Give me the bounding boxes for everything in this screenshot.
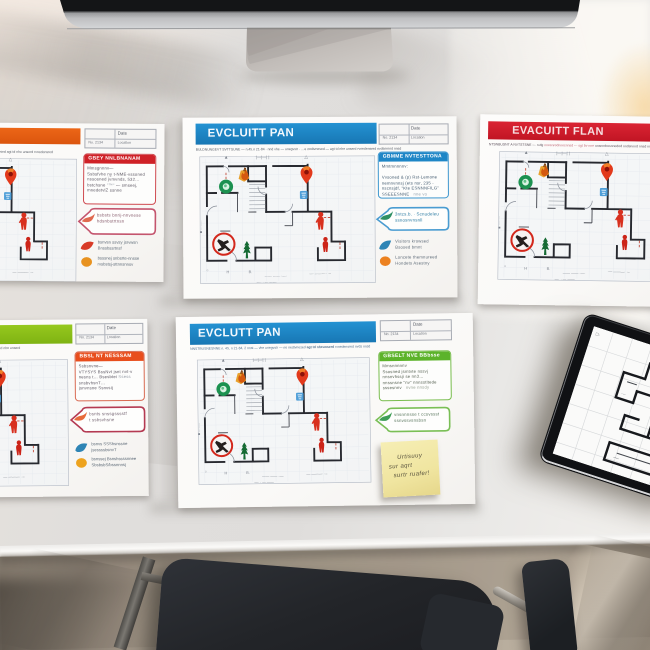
svg-text:■ ········: ■ ········ [199, 220, 203, 233]
svg-text:○: ○ [504, 264, 506, 268]
svg-text:△: △ [304, 154, 308, 159]
svg-text:·— ———· ·–: ·— ———· ·– [309, 272, 331, 276]
svg-text:—— —— ·—·: —— —— ·—· [265, 274, 287, 278]
svg-text:B.: B. [249, 270, 253, 274]
svg-text:—· · — ——: —· · — —— [257, 280, 277, 284]
svg-text:|—|—| |: |—|—| | [556, 150, 570, 155]
svg-text:—· · — ——: —· · — —— [254, 481, 274, 485]
svg-text:H: H [226, 270, 229, 274]
svg-text:□·: □· [595, 331, 601, 337]
svg-text:▲: ▲ [524, 150, 529, 155]
svg-text:■ ········: ■ ········ [197, 423, 201, 436]
svg-text:··-: ··- [621, 391, 627, 397]
svg-text:—— —— ·—·: —— —— ·—· [262, 474, 284, 478]
svg-text:—· · — ——: —· · — —— [555, 277, 575, 281]
svg-text:△: △ [9, 157, 13, 162]
svg-text:▲: ▲ [224, 155, 229, 160]
svg-text:|—|—| |: |—|—| | [253, 357, 266, 362]
svg-text:△: △ [605, 151, 609, 156]
svg-text:△: △ [300, 356, 304, 361]
svg-text:○: ○ [205, 470, 207, 474]
svg-text:○: ○ [206, 268, 208, 272]
svg-text:H: H [225, 471, 228, 475]
svg-text:B.: B. [246, 471, 250, 475]
svg-text:·— ———· ·–: ·— ———· ·– [3, 475, 25, 479]
svg-text:H: H [524, 267, 527, 271]
svg-text:—— —— ·—·: —— —— ·—· [563, 271, 586, 275]
svg-text:·— ———· ·–: ·— ———· ·– [607, 270, 630, 274]
svg-text:·— ———· ·–: ·— ———· ·– [306, 472, 328, 476]
svg-text:■ ········: ■ ········ [498, 216, 502, 229]
svg-text:·— ———· ·–: ·— ———· ·– [12, 270, 33, 274]
svg-text:B.: B. [547, 267, 551, 271]
svg-text:|—|—| |: |—|—| | [256, 154, 269, 159]
svg-text:—·: —· [613, 454, 620, 461]
svg-text:▲: ▲ [221, 358, 226, 363]
